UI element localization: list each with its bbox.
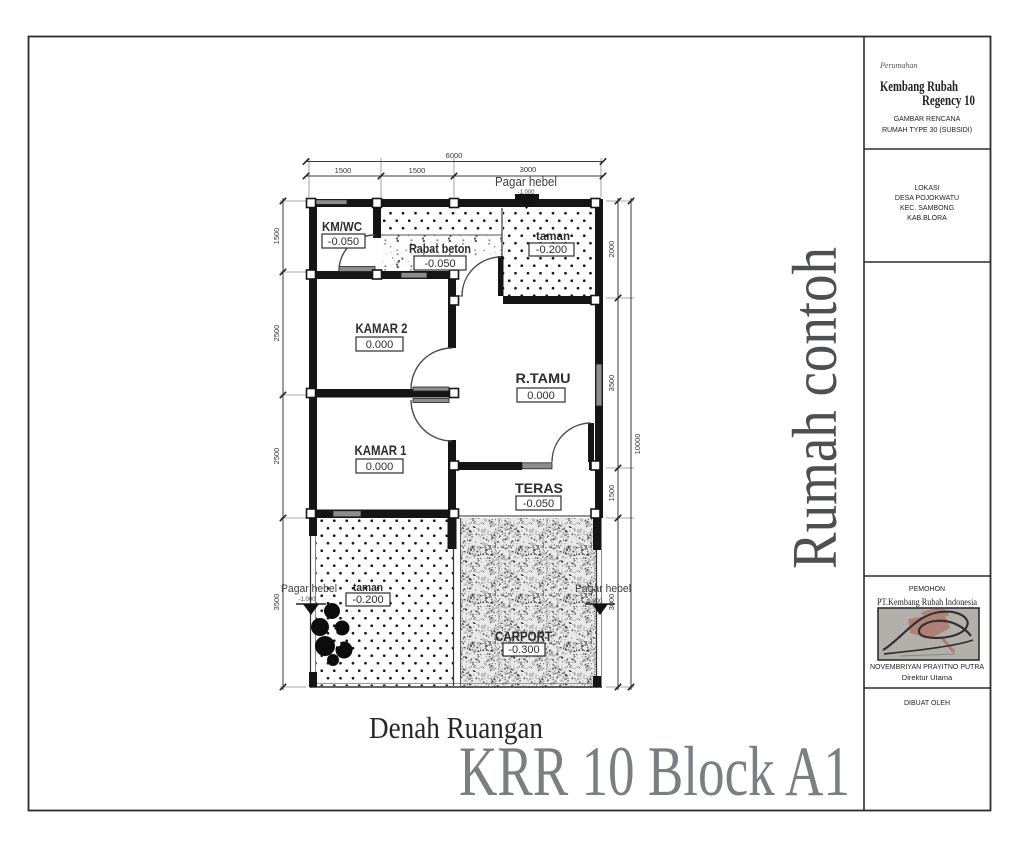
svg-text:KAB.BLORA: KAB.BLORA — [907, 215, 947, 222]
svg-text:KRR 10 Block A1: KRR 10 Block A1 — [459, 733, 850, 811]
svg-text:-1.000: -1.000 — [298, 597, 316, 603]
svg-text:3000: 3000 — [607, 594, 616, 611]
svg-text:Direktur Utama: Direktur Utama — [902, 673, 953, 682]
svg-text:KM/WC: KM/WC — [322, 219, 363, 234]
svg-text:Pagar hebel: Pagar hebel — [281, 583, 337, 595]
svg-text:DIBUAT OLEH: DIBUAT OLEH — [904, 700, 950, 707]
svg-text:taman: taman — [536, 231, 570, 243]
svg-text:3500: 3500 — [272, 594, 281, 611]
svg-text:1500: 1500 — [607, 485, 616, 502]
svg-text:PEMOHON: PEMOHON — [909, 586, 945, 593]
svg-text:KAMAR 2: KAMAR 2 — [356, 320, 408, 336]
svg-text:taman: taman — [353, 582, 383, 594]
svg-text:LOKASI: LOKASI — [914, 185, 939, 192]
svg-text:2500: 2500 — [272, 325, 281, 342]
svg-text:-0.050: -0.050 — [328, 236, 359, 248]
svg-text:3000: 3000 — [520, 165, 537, 174]
svg-text:PT.Kembang Rubah Indonesia: PT.Kembang Rubah Indonesia — [877, 598, 978, 608]
svg-text:Regency 10: Regency 10 — [922, 93, 975, 109]
svg-text:Rabat beton: Rabat beton — [409, 241, 471, 256]
svg-text:-0.200: -0.200 — [536, 244, 567, 256]
svg-text:KEC. SAMBONG: KEC. SAMBONG — [900, 205, 954, 212]
svg-text:-1.000: -1.000 — [585, 599, 603, 605]
svg-text:Perumahan: Perumahan — [879, 61, 917, 70]
svg-text:2000: 2000 — [607, 241, 616, 258]
svg-text:-0.050: -0.050 — [424, 258, 455, 270]
svg-text:0.000: 0.000 — [527, 390, 555, 402]
svg-text:-0.200: -0.200 — [352, 594, 383, 606]
svg-text:1500: 1500 — [335, 166, 352, 175]
svg-text:6000: 6000 — [446, 151, 463, 160]
svg-text:1500: 1500 — [272, 228, 281, 245]
svg-text:10000: 10000 — [633, 434, 642, 455]
svg-text:2500: 2500 — [272, 448, 281, 465]
svg-text:-0.050: -0.050 — [523, 498, 554, 510]
svg-text:KAMAR 1: KAMAR 1 — [355, 442, 407, 458]
svg-text:-1.000: -1.000 — [517, 190, 535, 196]
svg-text:RUMAH TYPE 30 (SUBSIDI): RUMAH TYPE 30 (SUBSIDI) — [882, 127, 972, 134]
svg-text:1500: 1500 — [409, 166, 426, 175]
svg-text:-0.300: -0.300 — [508, 644, 539, 656]
svg-text:NOVEMBRIYAN PRAYITNO PUTRA: NOVEMBRIYAN PRAYITNO PUTRA — [870, 664, 984, 671]
svg-text:0.000: 0.000 — [366, 339, 394, 351]
svg-text:0.000: 0.000 — [366, 461, 394, 473]
svg-text:R.TAMU: R.TAMU — [516, 370, 571, 386]
svg-text:Pagar hebel: Pagar hebel — [495, 174, 557, 189]
svg-text:3500: 3500 — [607, 375, 616, 392]
svg-text:Rumah contoh: Rumah contoh — [779, 247, 850, 569]
svg-text:TERAS: TERAS — [515, 480, 563, 496]
svg-text:GAMBAR RENCANA: GAMBAR RENCANA — [894, 116, 961, 123]
svg-text:DESA POJOKWATU: DESA POJOKWATU — [895, 195, 959, 202]
svg-text:Pagar hebel: Pagar hebel — [575, 583, 631, 595]
svg-text:CARPORT: CARPORT — [495, 628, 552, 644]
